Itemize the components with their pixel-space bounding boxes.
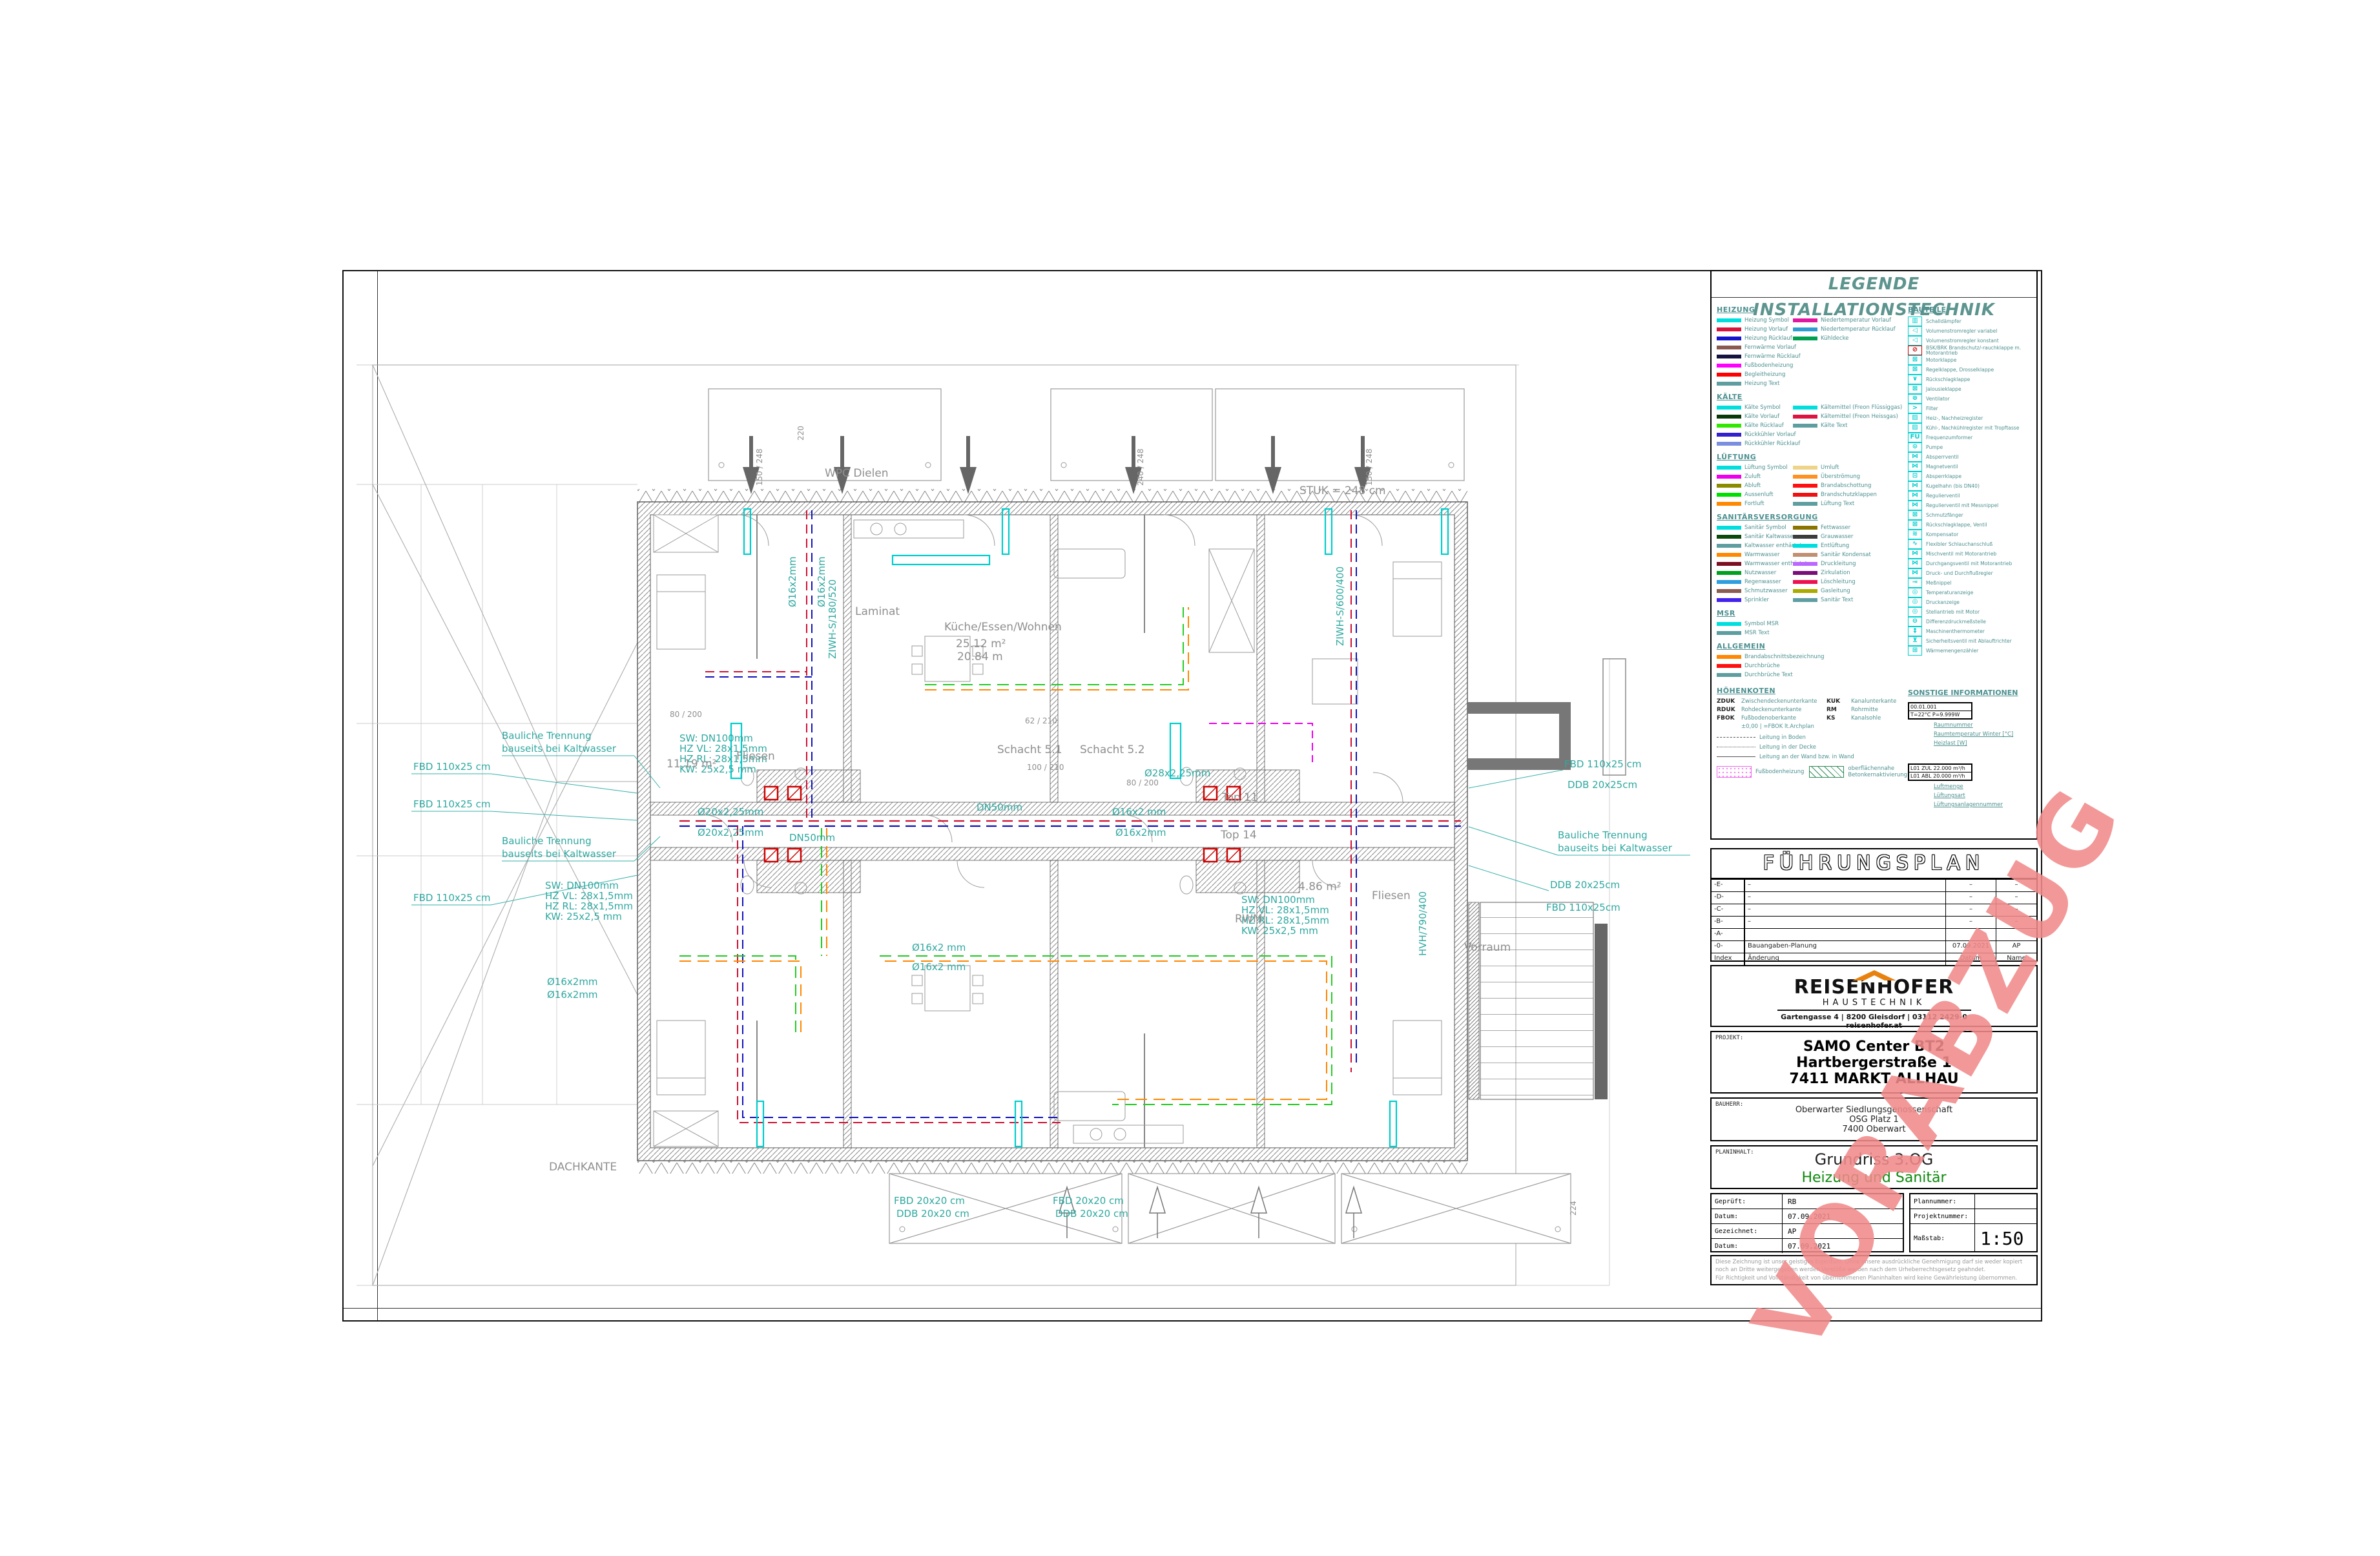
plan-label: 20.84 m: [957, 650, 1003, 663]
legend-color-swatch: [1793, 327, 1817, 331]
legend-entry: Sanitär Kaltwasser: [1717, 532, 1793, 541]
corridor-wall-top: [650, 802, 1454, 815]
legend-bauteil: ⋈Regulierventil: [1908, 491, 2042, 501]
legend-entry: Grauwasser: [1793, 532, 1904, 541]
bauteil-icon: ⊸: [1908, 578, 1922, 588]
plan-label: DDB 20x20 cm: [896, 1208, 969, 1219]
room-info-callouts: RaumnummerRaumtemperatur Winter [°C]Heiz…: [1908, 722, 2042, 747]
legend-color-swatch: [1717, 631, 1741, 635]
legend-entry: Überströmung: [1793, 472, 1904, 481]
bauteil-icon: ⊠: [1908, 365, 1922, 375]
legend-bauteil: ⊛Ventilator: [1908, 394, 2042, 404]
plan-label: Ø16x2 mm: [912, 961, 966, 973]
legend-bauteil: ◎Stellantrieb mit Motor: [1908, 607, 2042, 617]
bauherr-block: BAUHERR: Oberwarter Siedlungsgenossensch…: [1710, 1097, 2038, 1141]
legend-entry: Brandabschottung: [1793, 481, 1904, 490]
plan-label: Küche/Essen/Wohnen: [944, 621, 1062, 634]
legend-color-swatch: [1793, 562, 1817, 566]
hoehenkote: ZDUKZwischendeckenunterkante: [1717, 697, 1826, 705]
info-tables: Geprüft:RB Datum:07.09.2021 Gezeichnet:A…: [1710, 1193, 2038, 1252]
legend-hoehenkoten: HÖHENKOTEN ZDUKZwischendeckenunterkanteR…: [1717, 682, 1905, 778]
revision-row: -E-–––: [1712, 880, 2036, 892]
legend-bauteil: ⊻Sicherheitsventil mit Ablauftrichter: [1908, 636, 2042, 646]
plan-label: ZIWH-S/600/400: [1334, 566, 1346, 646]
bauteil-icon: ⋈: [1908, 549, 1922, 559]
legend-bauteil: ≋Kompensator: [1908, 530, 2042, 539]
legend-color-swatch: [1793, 544, 1817, 548]
legend-color-swatch: [1717, 571, 1741, 575]
legend-color-swatch: [1717, 466, 1741, 470]
plan-label: Ø16x2mm: [547, 976, 598, 988]
fussbodenheizung-swatch: Fußbodenheizung: [1717, 765, 1804, 778]
plan-label: FBD 110x25cm: [1546, 902, 1620, 913]
bauteil-icon: ◎: [1908, 607, 1922, 617]
number-table: Plannummer: Projektnummer: Maßstab:1:50: [1909, 1193, 2038, 1252]
legend-color-swatch: [1717, 433, 1741, 437]
legend-entry: Symbol MSR: [1717, 619, 1793, 628]
bauteil-icon: ≋: [1908, 530, 1922, 539]
plan-label: RWM: [1235, 913, 1263, 926]
hoehenkote: RMRohrmitte: [1826, 705, 1904, 714]
bauteil-icon: ⊠: [1908, 510, 1922, 520]
plan-label: Schacht 5.1: [997, 743, 1062, 756]
legend-entry: Sprinkler: [1717, 596, 1793, 605]
fuehrungsplan-title: FÜHRUNGSPLAN: [1712, 849, 2036, 880]
legend-bauteil: ⋈Regulierventil mit Messnippel: [1908, 501, 2042, 510]
legend-section: MSRSymbol MSRMSR Text: [1717, 609, 1905, 638]
line-style-entry: Leitung in Boden: [1717, 732, 1905, 742]
legend-color-swatch: [1793, 502, 1817, 506]
plan-label: FBD 110x25 cm: [1564, 758, 1641, 770]
legend-entry: Kaltwasser enthärtet: [1717, 541, 1793, 550]
revision-row: -B-–––: [1712, 917, 2036, 929]
legend-entry: Abluft: [1717, 481, 1793, 490]
legend-color-swatch: [1717, 544, 1741, 548]
hoehenkote: FBOKFußbodenoberkante: [1717, 714, 1826, 722]
legend-entry: Kühldecke: [1793, 334, 1904, 343]
legend-color-swatch: [1717, 580, 1741, 584]
bauteil-icon: ⊘: [1908, 346, 1922, 355]
bauteil-icon: ▨: [1908, 413, 1922, 423]
legend-entry: Schmutzwasser: [1717, 586, 1793, 596]
legend-entry: Rückkühler Vorlauf: [1717, 430, 1793, 439]
revision-row: -D-–––: [1712, 892, 2036, 904]
legend-entry: Begleitheizung: [1717, 370, 1793, 379]
legend-color-swatch: [1717, 373, 1741, 377]
plan-label: Bauliche Trennung: [1558, 829, 1648, 841]
legend-bauteil: ◎Temperaturanzeige: [1908, 588, 2042, 597]
plan-label: bauseits bei Kaltwasser: [1558, 842, 1673, 854]
revision-row: -A-: [1712, 929, 2036, 941]
legend-color-swatch: [1717, 346, 1741, 349]
plan-label: ZIWH-S/180/520: [827, 579, 838, 659]
plan-label: Ø16x2mm: [787, 556, 798, 607]
plan-label: 80 / 200: [670, 710, 702, 719]
legend-bauteil: ⊠Regelklappe, Drosselklappe: [1908, 365, 2042, 375]
bauteil-icon: ⋈: [1908, 452, 1922, 462]
plan-label: Ø16x2 mm: [912, 942, 966, 953]
plan-label: DN50mm: [789, 832, 835, 844]
legend-section: HEIZUNGHeizung SymbolHeizung VorlaufHeiz…: [1717, 306, 1905, 388]
legend-bauteil: ⊠Schmutzfänger: [1908, 510, 2042, 520]
legend-color-swatch: [1793, 466, 1817, 470]
legend-bauteil: ⋈Kugelhahn (bis DN40): [1908, 481, 2042, 491]
legend-bauteil: ◁Volumenstromregler variabel: [1908, 326, 2042, 336]
bauteile-header: BAUTEILE: [1908, 306, 2042, 314]
legend-color-swatch: [1717, 502, 1741, 506]
legend-bauteil: ⊙Pumpe: [1908, 442, 2042, 452]
hoehenkoten-header: HÖHENKOTEN: [1717, 687, 1905, 695]
bauteil-icon: ⊡: [1908, 472, 1922, 481]
legend-entry: Durchbrüche: [1717, 661, 1793, 670]
title-column: LEGENDE INSTALLATIONSTECHNIK HEIZUNGHeiz…: [1710, 270, 2038, 1285]
legend-color-swatch: [1717, 442, 1741, 446]
plan-label: FBD 110x25 cm: [413, 761, 490, 773]
bauteil-icon: ▨: [1908, 423, 1922, 433]
legend-sonstige: SONSTIGE INFORMATIONEN 00.01.001 T=22°C …: [1908, 689, 2042, 808]
legend-entry: MSR Text: [1717, 628, 1793, 638]
legend-entry: Fortluft: [1717, 499, 1793, 508]
legend-color-swatch: [1717, 526, 1741, 530]
legend-entry: Fußbodenheizung: [1717, 361, 1793, 370]
plan-label: Vorraum: [1464, 941, 1511, 954]
legend-entry: Heizung Symbol: [1717, 316, 1793, 325]
plan-label: DDB 20x20 cm: [1055, 1208, 1128, 1219]
plan-label: STUK = 248 cm: [1299, 484, 1386, 497]
datum1-value: 07.09.2021: [1783, 1212, 1830, 1221]
plan-label: Ø16x2mm: [1115, 827, 1166, 838]
bauteil-icon: ⋈: [1908, 491, 1922, 501]
legend-entry: Zuluft: [1717, 472, 1793, 481]
legend-color-swatch: [1717, 415, 1741, 419]
legend-color-swatch: [1717, 318, 1741, 322]
legend-bauteil: ▨Heiz-, Nachheizregister: [1908, 413, 2042, 423]
drawing-sheet: Bauliche Trennungbauseits bei Kaltwasser…: [0, 0, 2380, 1556]
sonstige-header: SONSTIGE INFORMATIONEN: [1908, 689, 2042, 697]
bauteil-icon: FU: [1908, 433, 1922, 442]
plan-label: Ø16x2mm: [816, 556, 827, 607]
plan-label: 220: [796, 426, 805, 441]
legend-entry: Kältemittel (Freon Flüssiggas): [1793, 403, 1904, 412]
plan-label: DDB 20x25cm: [1550, 879, 1620, 891]
legend-color-swatch: [1717, 589, 1741, 593]
legend-entry: Fettwasser: [1793, 523, 1904, 532]
company-sub: HAUSTECHNIK: [1712, 998, 2036, 1008]
hoehenkoten-note: ±0,00 | =FBOK lt.Archplan: [1741, 723, 1826, 730]
bauteil-icon: ◎: [1908, 588, 1922, 597]
legend-color-swatch: [1717, 598, 1741, 602]
plan-label: WPC Dielen: [825, 467, 889, 480]
legend-color-swatch: [1793, 475, 1817, 479]
datum2-value: 07.09.2021: [1783, 1242, 1830, 1250]
legend-entry: Durchbrüche Text: [1717, 670, 1793, 679]
plan-label: KW: 25x2,5 mm: [545, 911, 622, 922]
plan-label: KW: 25x2,5 mm: [1241, 925, 1318, 937]
legend-color-swatch: [1793, 526, 1817, 530]
bauherr-line2: OSG Platz 1: [1712, 1115, 2036, 1125]
legend-entry: Lüftung Text: [1793, 499, 1904, 508]
plan-label: Ø28x2,25mm: [1144, 767, 1210, 779]
plan-label: Bauliche Trennung: [502, 730, 592, 742]
legend-color-swatch: [1717, 382, 1741, 386]
bauteil-icon: ⊛: [1908, 394, 1922, 404]
bauteil-icon: ∨: [1908, 375, 1922, 384]
hoehenkote: RDUKRohdeckenunterkante: [1717, 705, 1826, 714]
plan-label: Ø16x2 mm: [1112, 806, 1166, 818]
bauteil-icon: ⋈: [1908, 568, 1922, 578]
bauteil-icon: ⊖: [1908, 617, 1922, 627]
bauteil-icon: ⋈: [1908, 501, 1922, 510]
company-web[interactable]: reisenhofer.at: [1712, 1021, 2036, 1030]
bauherr-line1: Oberwarter Siedlungsgenossenschaft: [1712, 1105, 2036, 1115]
legend-color-swatch: [1717, 562, 1741, 566]
legend-entry: Regenwasser: [1717, 577, 1793, 586]
bauteil-icon: ⊻: [1908, 636, 1922, 646]
plan-label: 150 / 248: [1365, 449, 1374, 486]
hoehenkote: KUKKanalunterkante: [1826, 697, 1904, 705]
legend-entry: Sanitär Text: [1793, 596, 1904, 605]
legend-entry: Brandschutzklappen: [1793, 490, 1904, 499]
plan-label: FBD 20x20 cm: [894, 1195, 965, 1207]
bauherr-label: BAUHERR:: [1715, 1101, 1743, 1108]
legend-color-swatch: [1793, 598, 1817, 602]
legend-bauteil: ⋈Magnetventil: [1908, 462, 2042, 472]
plan-label: 240 / 248: [1136, 449, 1145, 486]
logo-roof-icon: [1852, 970, 1896, 980]
air-info-callouts: LuftmengeLüftungsartLüftungsanlagennumme…: [1908, 783, 2042, 808]
revision-row: IndexÄnderungDatumName: [1712, 953, 2036, 965]
legend-entry: Kälte Rücklauf: [1717, 421, 1793, 430]
legend-bauteil: ⊠Rückschlagklappe, Ventil: [1908, 520, 2042, 530]
legend-bauteil: ⋈Mischventil mit Motorantrieb: [1908, 549, 2042, 559]
legend-color-swatch: [1717, 355, 1741, 358]
plan-label: 100 / 210: [1027, 763, 1064, 772]
plan-subtitle: Heizung und Sanitär: [1712, 1170, 2036, 1186]
legend-entry: Lüftung Symbol: [1717, 463, 1793, 472]
check-table: Geprüft:RB Datum:07.09.2021 Gezeichnet:A…: [1710, 1193, 1904, 1252]
legend-entry: Warmwasser enthärtet: [1717, 559, 1793, 568]
legend-entry: Kälte Text: [1793, 421, 1904, 430]
legend-color-swatch: [1717, 622, 1741, 626]
legend-color-swatch: [1793, 535, 1817, 539]
legend-color-swatch: [1793, 424, 1817, 428]
legend-entry: Entlüftung: [1793, 541, 1904, 550]
legend-color-swatch: [1793, 553, 1817, 557]
bauteil-icon: ▥: [1908, 316, 1922, 326]
legend-bauteil: >Filter: [1908, 404, 2042, 413]
company-address: Gartengasse 4 | 8200 Gleisdorf | 03112 2…: [1712, 1013, 2036, 1021]
plan-label: Ø20x2,25mm: [698, 806, 763, 818]
projekt-line3: 7411 MARKT ALLHAU: [1712, 1071, 2036, 1087]
legend-color-swatch: [1793, 415, 1817, 419]
bauteil-icon: ◎: [1908, 597, 1922, 607]
bauteil-icon: ∿: [1908, 539, 1922, 549]
revision-row: -C-–––: [1712, 904, 2036, 917]
bauteil-icon: ⊙: [1908, 442, 1922, 452]
legend-entry: Kälte Symbol: [1717, 403, 1793, 412]
fuehrungsplan-block: FÜHRUNGSPLAN -E-–––-D-–––-C-–––-B-–––-A-…: [1710, 848, 2038, 962]
legend-color-swatch: [1793, 571, 1817, 575]
legend-bauteil: FUFrequenzumformer: [1908, 433, 2042, 442]
legend-panel: LEGENDE INSTALLATIONSTECHNIK HEIZUNGHeiz…: [1710, 270, 2038, 840]
plan-label: 224: [1569, 1201, 1578, 1216]
company-logo-block: REISENHOFER HAUSTECHNIK Gartengasse 4 | …: [1710, 965, 2038, 1027]
legend-entry: Heizung Rücklauf: [1717, 334, 1793, 343]
bauteil-icon: ‡: [1908, 627, 1922, 636]
bauteil-icon: ◁: [1908, 326, 1922, 336]
bauteil-icon: ⊠: [1908, 384, 1922, 394]
bauteil-icon: ⋈: [1908, 559, 1922, 568]
legend-color-swatch: [1717, 406, 1741, 410]
legend-color-swatch: [1717, 484, 1741, 488]
legend-bauteil: ⊠Motorklappe: [1908, 355, 2042, 365]
legend-section: LÜFTUNGLüftung SymbolZuluftAbluftAussenl…: [1717, 453, 1905, 508]
projekt-block: PROJEKT: SAMO Center BT2 Hartbergerstraß…: [1710, 1031, 2038, 1094]
plan-label: Ø20x2,25mm: [698, 827, 763, 838]
plan-label: FBD 20x20 cm: [1053, 1195, 1124, 1207]
legend-bauteil: ⊠Jalousieklappe: [1908, 384, 2042, 394]
projekt-label: PROJEKT:: [1715, 1035, 1743, 1041]
legend-entry: Brandabschnittsbezeichnung: [1717, 652, 1793, 661]
bauteil-icon: ◁: [1908, 336, 1922, 346]
legend-entry: Gasleitung: [1793, 586, 1904, 596]
legend-bauteil: ⊡Absperrklappe: [1908, 472, 2042, 481]
legend-entry: Druckleitung: [1793, 559, 1904, 568]
legend-bauteil: ⋈Druck- und Durchflußregler: [1908, 568, 2042, 578]
plan-label: FBD 110x25 cm: [413, 798, 490, 810]
bauteil-icon: ⊠: [1908, 355, 1922, 365]
legend-entry: Sanitär Symbol: [1717, 523, 1793, 532]
plan-label: Laminat: [855, 605, 900, 618]
legend-entry: Fernwärme Vorlauf: [1717, 343, 1793, 352]
legend-color-swatch: [1793, 589, 1817, 593]
legend-color-swatch: [1717, 535, 1741, 539]
bauherr-line3: 7400 Oberwart: [1712, 1125, 2036, 1134]
legend-entry: Warmwasser: [1717, 550, 1793, 559]
legend-bauteil: ◁Volumenstromregler konstant: [1908, 336, 2042, 346]
plan-label: FBD 110x25 cm: [413, 892, 490, 904]
legend-entry: Zirkulation: [1793, 568, 1904, 577]
legend-color-swatch: [1717, 655, 1741, 659]
legend-bauteil: ∨Rückschlagklappe: [1908, 375, 2042, 384]
air-info-box: L01 ZUL 22.000 m³/h L01 ABL 20.000 m³/h: [1908, 763, 1972, 781]
plan-label: 62 / 210: [1025, 716, 1057, 725]
legend-entry: Rückkühler Rücklauf: [1717, 439, 1793, 448]
legend-entry: Heizung Vorlauf: [1717, 325, 1793, 334]
plan-label: 80 / 200: [1126, 778, 1159, 787]
hoehenkote: KSKanalsohle: [1826, 714, 1904, 722]
plan-label: Top 14: [1220, 829, 1257, 842]
plan-label: Ø16x2mm: [547, 989, 598, 1001]
legend-bauteil: ⊞Wärmemengenzähler: [1908, 646, 2042, 656]
room-info-box: 00.01.001 T=22°C P=9.999W: [1908, 702, 1972, 720]
legend-entry: Niedertemperatur Rücklauf: [1793, 325, 1904, 334]
legend-bauteil: ▨Kühl-, Nachkühlregister mit Tropftasse: [1908, 423, 2042, 433]
projekt-line2: Hartbergerstraße 1: [1712, 1055, 2036, 1071]
legend-color-swatch: [1793, 406, 1817, 410]
projekt-line1: SAMO Center BT2: [1712, 1039, 2036, 1055]
floor-plan-svg: Bauliche Trennungbauseits bei Kaltwasser…: [344, 271, 1710, 1318]
legend-entry: Kältemittel (Freon Heissgas): [1793, 412, 1904, 421]
gezeichnet-value: AP: [1783, 1227, 1796, 1236]
balcony: [709, 389, 1464, 481]
plan-label: HVH/790/400: [1417, 891, 1429, 956]
legend-entry: Sanitär Kondensat: [1793, 550, 1904, 559]
plan-label: Fliesen: [736, 750, 775, 763]
legend-entry: Kälte Vorlauf: [1717, 412, 1793, 421]
revision-row: -0-Bauangaben-Planung07.09.2021AP: [1712, 941, 2036, 953]
plan-label: bauseits bei Kaltwasser: [502, 848, 617, 860]
legend-entry: Fernwärme Rücklauf: [1717, 352, 1793, 361]
bauteil-icon: ⊠: [1908, 520, 1922, 530]
legend-section: ALLGEMEINBrandabschnittsbezeichnungDurch…: [1717, 642, 1905, 679]
legend-color-swatch: [1793, 337, 1817, 340]
line-style-entry: Leitung an der Wand bzw. in Wand: [1717, 752, 1905, 762]
legend-entry: Aussenluft: [1717, 490, 1793, 499]
plan-label: DDB 20x25cm: [1568, 779, 1637, 791]
plan-label: 150 / 248: [755, 449, 764, 486]
floor-plan: Bauliche Trennungbauseits bei Kaltwasser…: [344, 271, 1710, 1318]
plan-label: Bauliche Trennung: [502, 835, 592, 847]
disclaimer: Diese Zeichnung ist unser geistiges Eige…: [1710, 1255, 2038, 1285]
legend-entry: Heizung Text: [1717, 379, 1793, 388]
legend-bauteil: ⊖Differenzdruckmeßstelle: [1908, 617, 2042, 627]
legend-entry: Umluft: [1793, 463, 1904, 472]
legend-color-swatch: [1793, 493, 1817, 497]
legend-color-swatch: [1717, 493, 1741, 497]
legend-bauteil: ◎Druckanzeige: [1908, 597, 2042, 607]
legend-color-swatch: [1793, 484, 1817, 488]
legend-title: LEGENDE INSTALLATIONSTECHNIK: [1712, 271, 2036, 298]
legend-bauteil: ⋈Absperrventil: [1908, 452, 2042, 462]
bauteil-icon: ⋈: [1908, 462, 1922, 472]
legend-color-swatch: [1717, 664, 1741, 668]
legend-bauteil: ⋈Durchgangsventil mit Motorantrieb: [1908, 559, 2042, 568]
legend-sections: HEIZUNGHeizung SymbolHeizung VorlaufHeiz…: [1717, 301, 1905, 679]
legend-entry: Niedertemperatur Vorlauf: [1793, 316, 1904, 325]
legend-section: KÄLTEKälte SymbolKälte VorlaufKälte Rück…: [1717, 393, 1905, 448]
legend-bauteil: ⊸Meßnippel: [1908, 578, 2042, 588]
legend-color-swatch: [1717, 424, 1741, 428]
insulation-bottom: [637, 1161, 1467, 1174]
geprueft-value: RB: [1783, 1198, 1796, 1206]
legend-bauteil: ▥Schalldämpfer: [1908, 316, 2042, 326]
legend-color-swatch: [1717, 327, 1741, 331]
planinhalt-block: PLANINHALT: Grundriss 3.OG Heizung und S…: [1710, 1145, 2038, 1189]
bauteile-list: ▥Schalldämpfer◁Volumenstromregler variab…: [1908, 316, 2042, 656]
planinhalt-label: PLANINHALT:: [1715, 1149, 1754, 1156]
legend-color-swatch: [1717, 475, 1741, 479]
legend-color-swatch: [1717, 364, 1741, 368]
revision-table: -E-–––-D-–––-C-–––-B-–––-A--0-Bauangaben…: [1712, 880, 2036, 965]
legend-color-swatch: [1793, 580, 1817, 584]
bauteil-icon: >: [1908, 404, 1922, 413]
legend-section: SANITÄRSVERSORGUNGSanitär SymbolSanitär …: [1717, 513, 1905, 605]
line-style-entry: Leitung in der Decke: [1717, 742, 1905, 752]
plan-label: Fliesen: [1372, 889, 1411, 902]
bauteil-icon: ⋈: [1908, 481, 1922, 491]
plan-title: Grundriss 3.OG: [1712, 1150, 2036, 1168]
legend-entry: Löschleitung: [1793, 577, 1904, 586]
plan-label: bauseits bei Kaltwasser: [502, 743, 617, 754]
legend-entry: Nutzwasser: [1717, 568, 1793, 577]
massstab-value: 1:50: [1975, 1228, 2023, 1249]
plan-label: 25.12 m²: [956, 638, 1006, 650]
plan-label: 4.86 m²: [1298, 880, 1341, 893]
balcony-bottom: [889, 1174, 1571, 1243]
bauteil-icon: ⊞: [1908, 646, 1922, 656]
legend-color-swatch: [1717, 673, 1741, 677]
